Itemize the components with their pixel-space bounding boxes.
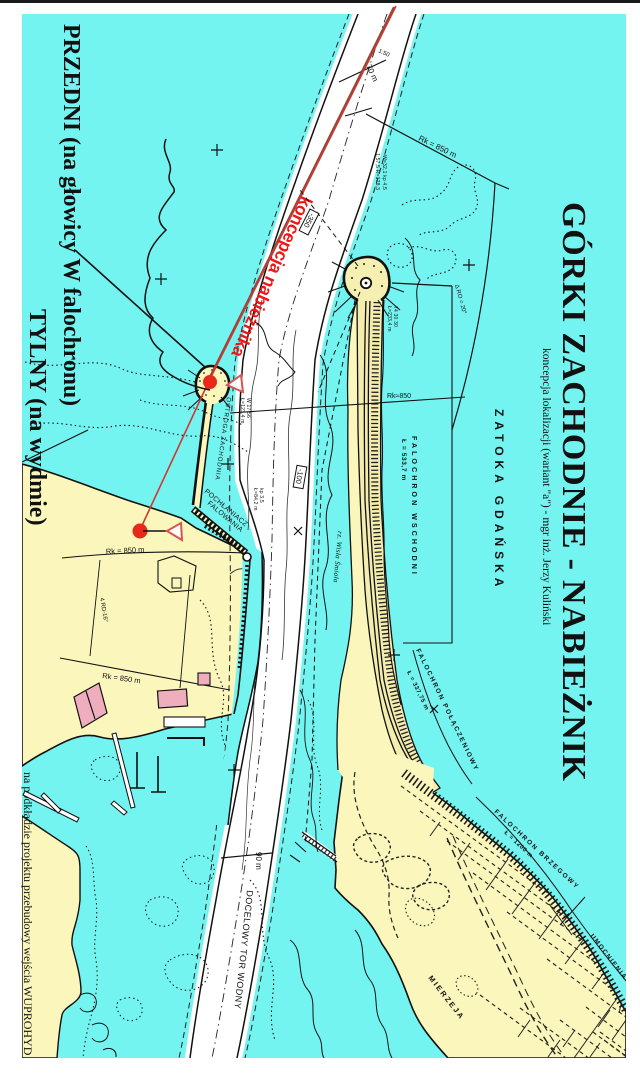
svg-text:GÓRKI ZACHODNIE - NABIEŻNIK: GÓRKI ZACHODNIE - NABIEŻNIK <box>555 202 593 782</box>
svg-text:90 m: 90 m <box>254 852 263 870</box>
svg-text:74 30 30: 74 30 30 <box>392 306 398 327</box>
svg-text:Ł=84,2 m: Ł=84,2 m <box>252 488 258 511</box>
svg-text:Ł=123,4 m: Ł=123,4 m <box>239 398 245 424</box>
svg-text:koncepcja lokalizacji (wariant: koncepcja lokalizacji (wariant "a") - mg… <box>540 348 552 625</box>
svg-text:W 17 56: W 17 56 <box>245 398 251 418</box>
svg-text:1:57,5 R=178,3: 1:57,5 R=178,3 <box>374 153 380 190</box>
svg-text:ZATOKA GDAŃSKA: ZATOKA GDAŃSKA <box>492 409 507 591</box>
svg-text:FALOCHRON WSCHODNI: FALOCHRON WSCHODNI <box>410 436 417 577</box>
svg-text:Rk≈850: Rk≈850 <box>387 393 411 400</box>
svg-text:Ł = 533,7 m: Ł = 533,7 m <box>400 439 407 481</box>
svg-text:Ł=233,4 m: Ł=233,4 m <box>386 306 392 332</box>
svg-text:W=32,1 kp 4,5: W=32,1 kp 4,5 <box>381 155 387 190</box>
svg-text:TYLNY (na wydmie): TYLNY (na wydmie) <box>24 309 50 525</box>
svg-text:PRZEDNI (na głowicy W falochro: PRZEDNI (na głowicy W falochronu) <box>58 24 84 406</box>
svg-text:na podkładzie projektu przebud: na podkładzie projektu przebudowy wejści… <box>21 772 35 1056</box>
svg-text:kp 3,5: kp 3,5 <box>258 488 264 503</box>
